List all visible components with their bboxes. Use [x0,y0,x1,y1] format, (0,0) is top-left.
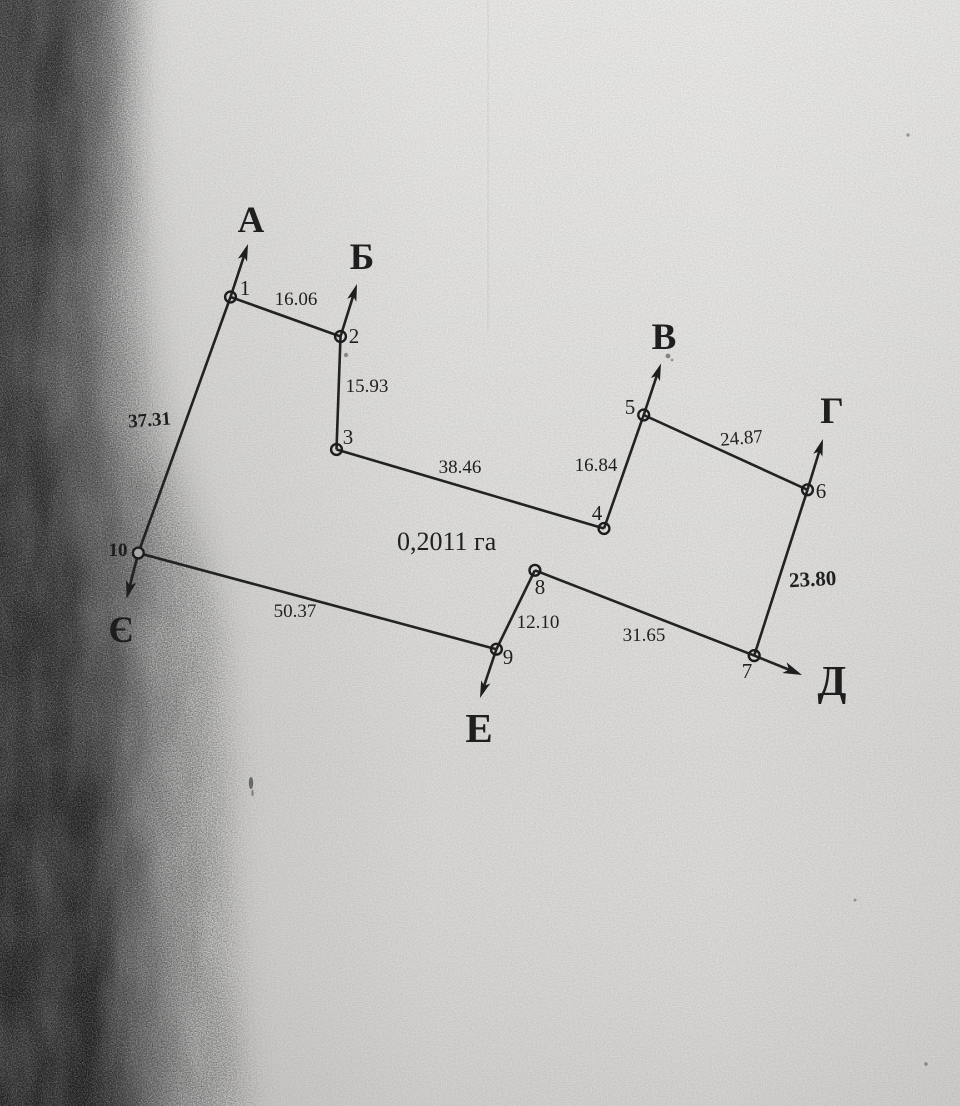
svg-text:0,2011 га: 0,2011 га [397,527,497,556]
svg-text:37.31: 37.31 [128,409,172,433]
svg-text:6: 6 [816,479,827,503]
svg-text:7: 7 [742,659,753,683]
svg-text:23.80: 23.80 [788,566,836,592]
svg-text:4: 4 [592,501,603,525]
svg-text:10: 10 [109,540,128,561]
svg-text:38.46: 38.46 [439,457,482,478]
svg-text:Г: Г [820,391,844,432]
svg-text:Є: Є [108,610,133,651]
svg-text:Д: Д [818,659,847,705]
svg-text:Е: Е [465,705,492,751]
svg-text:3: 3 [343,425,354,449]
svg-text:15.93: 15.93 [346,376,389,397]
svg-text:9: 9 [503,645,514,669]
svg-text:В: В [652,317,677,358]
svg-text:16.06: 16.06 [275,289,318,310]
svg-text:24.87: 24.87 [719,426,763,451]
svg-text:50.37: 50.37 [274,601,317,622]
svg-text:1: 1 [240,276,251,300]
svg-text:16.84: 16.84 [575,455,618,476]
svg-text:2: 2 [349,324,360,348]
svg-text:12.10: 12.10 [517,612,560,633]
svg-text:31.65: 31.65 [623,625,666,646]
svg-text:8: 8 [535,575,546,599]
svg-text:Б: Б [350,237,374,278]
svg-text:5: 5 [625,395,636,419]
svg-text:А: А [238,200,265,241]
